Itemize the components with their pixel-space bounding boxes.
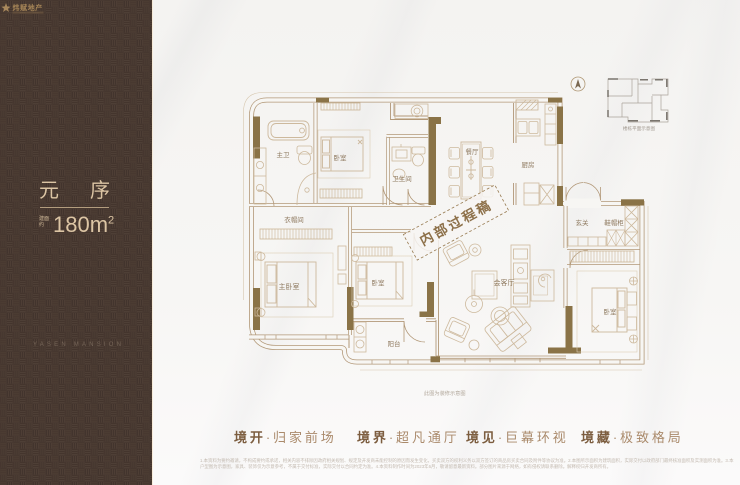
svg-text:衣帽间: 衣帽间 xyxy=(284,215,304,224)
svg-text:楼栋平面示意图: 楼栋平面示意图 xyxy=(623,125,656,132)
svg-text:卫生间: 卫生间 xyxy=(392,174,412,183)
svg-text:主卧室: 主卧室 xyxy=(279,282,300,291)
svg-text:此图为装修示意图: 此图为装修示意图 xyxy=(424,389,466,397)
svg-text:卧室: 卧室 xyxy=(604,307,618,316)
svg-text:卧室: 卧室 xyxy=(372,278,386,287)
svg-text:卧室: 卧室 xyxy=(334,153,348,162)
svg-text:玄关: 玄关 xyxy=(576,218,590,227)
svg-text:阳台: 阳台 xyxy=(388,339,401,348)
svg-text:餐厅: 餐厅 xyxy=(466,147,480,156)
svg-text:鞋帽柜: 鞋帽柜 xyxy=(604,218,624,227)
svg-text:主卫: 主卫 xyxy=(277,150,291,159)
svg-text:厨房: 厨房 xyxy=(522,160,535,169)
svg-text:会客厅: 会客厅 xyxy=(494,278,515,287)
